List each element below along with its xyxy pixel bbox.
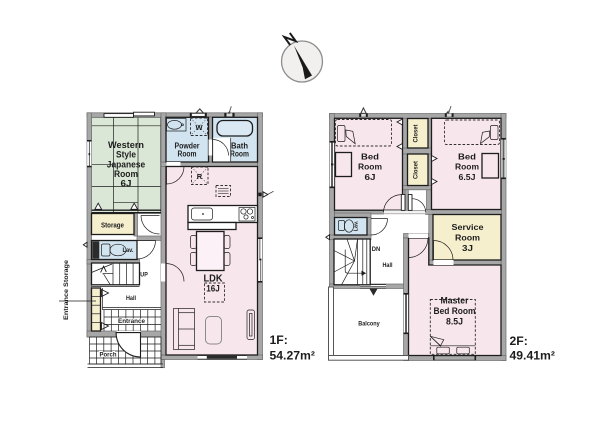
svg-text:W: W (195, 123, 203, 132)
svg-text:2F:: 2F: (510, 334, 528, 348)
svg-text:Western: Western (108, 140, 144, 150)
svg-text:Closet: Closet (413, 161, 420, 179)
svg-text:Room: Room (230, 150, 249, 159)
svg-text:Room: Room (358, 162, 382, 172)
svg-text:R: R (197, 172, 203, 181)
svg-text:16J: 16J (206, 284, 220, 295)
svg-text:Entrance: Entrance (118, 318, 145, 325)
svg-text:Porch: Porch (100, 352, 117, 359)
svg-text:6J: 6J (121, 179, 132, 189)
svg-text:49.41m²: 49.41m² (510, 349, 555, 363)
svg-text:Style: Style (116, 150, 136, 160)
svg-text:1F:: 1F: (270, 333, 288, 347)
svg-text:Room: Room (455, 162, 479, 172)
svg-text:6.5J: 6.5J (459, 172, 476, 182)
svg-text:Lav.: Lav. (354, 220, 360, 231)
svg-text:Service: Service (452, 222, 484, 232)
svg-text:Room: Room (178, 150, 197, 159)
svg-text:54.27m²: 54.27m² (270, 349, 315, 363)
svg-text:Storage: Storage (101, 221, 124, 230)
svg-text:Hall: Hall (383, 262, 393, 269)
svg-text:Master: Master (441, 296, 469, 306)
svg-text:Room: Room (455, 233, 480, 243)
svg-text:UP: UP (140, 271, 148, 278)
svg-text:6J: 6J (365, 172, 376, 182)
svg-text:Balcony: Balcony (358, 321, 380, 328)
svg-text:Bed: Bed (361, 152, 379, 162)
svg-text:Entrance Storage: Entrance Storage (63, 259, 70, 320)
svg-text:DN: DN (372, 246, 381, 253)
svg-text:Japanese: Japanese (107, 159, 146, 169)
svg-text:3J: 3J (462, 243, 473, 253)
svg-text:Lav.: Lav. (123, 247, 134, 254)
svg-text:Hall: Hall (126, 295, 136, 302)
svg-text:Bed: Bed (458, 152, 476, 162)
svg-text:Room: Room (114, 169, 138, 179)
svg-text:Bed Room: Bed Room (434, 306, 476, 316)
svg-text:8.5J: 8.5J (446, 317, 463, 327)
svg-text:Closet: Closet (413, 125, 420, 143)
